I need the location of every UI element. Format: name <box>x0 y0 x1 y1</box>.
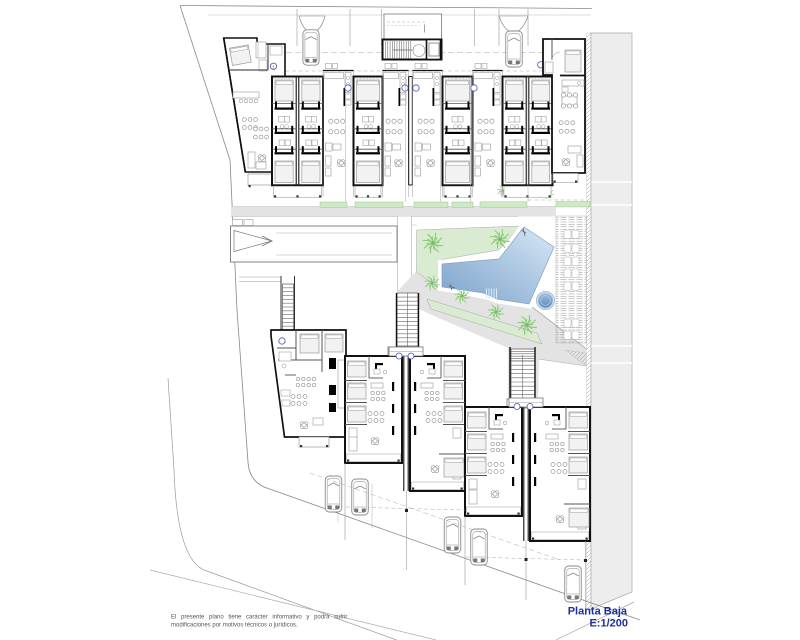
svg-text:E:1/200: E:1/200 <box>589 618 628 630</box>
svg-text:Planta Baja: Planta Baja <box>568 606 628 618</box>
svg-text:El presente plano tiene caráct: El presente plano tiene carácter informa… <box>171 615 347 621</box>
svg-text:modificaciones por motivos téc: modificaciones por motivos técnicos o ju… <box>171 623 298 629</box>
